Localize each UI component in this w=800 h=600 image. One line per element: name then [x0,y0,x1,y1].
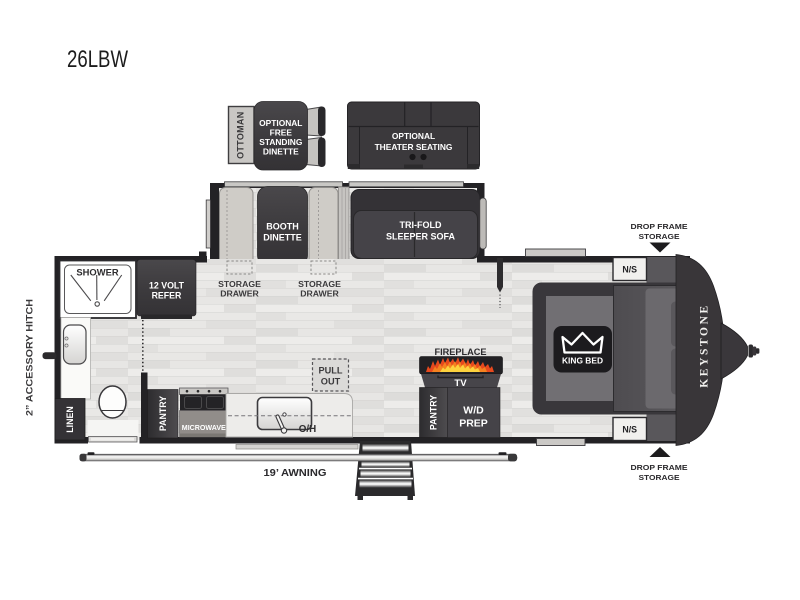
svg-text:DROP FRAME: DROP FRAME [631,222,688,231]
svg-text:SLEEPER SOFA: SLEEPER SOFA [386,232,456,242]
svg-text:PULL: PULL [319,366,343,376]
svg-text:THEATER SEATING: THEATER SEATING [375,142,453,152]
svg-text:STANDING: STANDING [259,137,302,147]
svg-text:DINETTE: DINETTE [263,147,299,157]
svg-text:FREE: FREE [270,128,293,138]
svg-text:DRAWER: DRAWER [220,289,259,299]
svg-text:2” ACCESSORY HITCH: 2” ACCESSORY HITCH [25,299,35,416]
svg-text:MICROWAVE: MICROWAVE [182,423,226,432]
svg-text:KING BED: KING BED [562,356,603,366]
svg-text:26LBW: 26LBW [67,46,128,73]
svg-text:STORAGE: STORAGE [639,473,680,482]
svg-text:DRAWER: DRAWER [300,289,339,299]
svg-text:OPTIONAL: OPTIONAL [392,131,435,141]
svg-text:PREP: PREP [459,418,488,430]
svg-text:STORAGE: STORAGE [218,279,261,289]
svg-text:PANTRY: PANTRY [429,395,439,430]
svg-text:O/H: O/H [299,424,316,435]
svg-text:N/S: N/S [622,265,637,275]
svg-text:BOOTH: BOOTH [266,222,299,232]
svg-text:STORAGE: STORAGE [298,279,341,289]
svg-text:LINEN: LINEN [65,406,75,432]
svg-text:REFER: REFER [152,291,182,301]
svg-text:TRI-FOLD: TRI-FOLD [400,220,442,230]
svg-text:STORAGE: STORAGE [639,232,680,241]
svg-text:12 VOLT: 12 VOLT [149,281,185,291]
svg-text:FIREPLACE: FIREPLACE [434,347,486,357]
svg-text:DINETTE: DINETTE [263,233,302,243]
svg-text:W/D: W/D [463,405,484,417]
svg-text:OUT: OUT [321,377,341,387]
svg-text:OTTOMAN: OTTOMAN [236,111,246,158]
svg-text:PANTRY: PANTRY [158,396,168,431]
svg-text:OPTIONAL: OPTIONAL [259,118,302,128]
svg-text:19’ AWNING: 19’ AWNING [264,468,327,479]
svg-text:KEYSTONE: KEYSTONE [699,303,711,388]
svg-text:N/S: N/S [622,425,637,435]
svg-text:SHOWER: SHOWER [76,267,118,278]
svg-text:DROP FRAME: DROP FRAME [631,463,688,472]
